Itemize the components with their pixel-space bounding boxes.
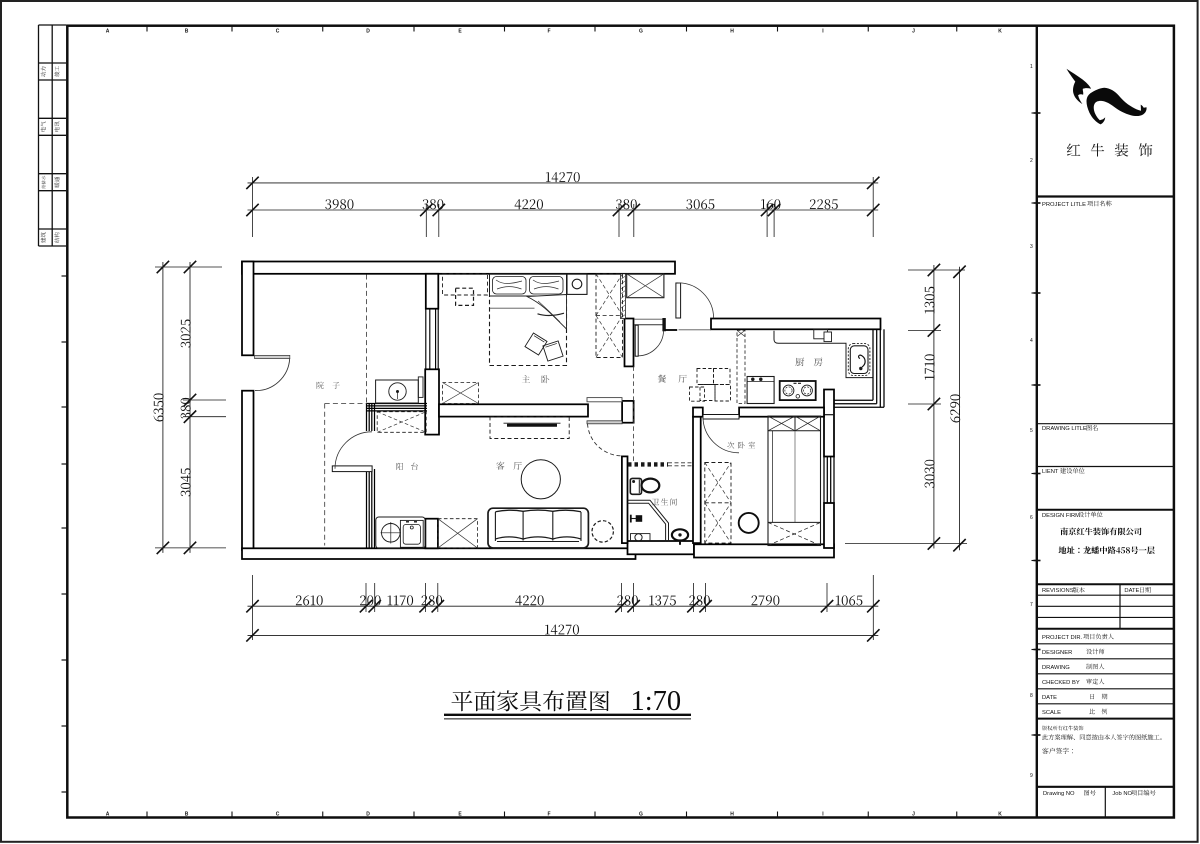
svg-text:DESIGN FIRM: DESIGN FIRM (1042, 513, 1080, 519)
svg-text:H: H (730, 29, 734, 35)
svg-text:J: J (912, 812, 915, 818)
svg-text:A: A (106, 29, 110, 35)
svg-text:1: 1 (1030, 64, 1033, 70)
svg-text:REVISIONS: REVISIONS (1042, 588, 1074, 594)
svg-text:DESIGNER: DESIGNER (1042, 650, 1072, 656)
svg-text:3: 3 (1030, 244, 1033, 250)
svg-text:2: 2 (1030, 158, 1033, 164)
svg-text:5: 5 (1030, 428, 1033, 434)
svg-text:4: 4 (1030, 338, 1033, 344)
svg-text:9: 9 (1030, 773, 1033, 779)
svg-text:1:70: 1:70 (631, 686, 682, 717)
svg-text:J: J (912, 29, 915, 35)
svg-text:7: 7 (1030, 602, 1033, 608)
svg-text:D: D (366, 812, 370, 818)
svg-text:G: G (639, 812, 643, 818)
svg-text:8: 8 (1030, 693, 1033, 699)
svg-text:K: K (998, 812, 1002, 818)
svg-text:H: H (730, 812, 734, 818)
svg-text:B: B (185, 29, 189, 35)
svg-text:C: C (276, 29, 280, 35)
svg-text:PROJECT DIR.: PROJECT DIR. (1042, 635, 1083, 641)
svg-text:LIENT: LIENT (1042, 469, 1059, 475)
svg-text:DATE: DATE (1042, 695, 1057, 701)
svg-text:A: A (106, 812, 110, 818)
svg-text:K: K (998, 29, 1002, 35)
svg-text:DRAWING: DRAWING (1042, 665, 1070, 671)
svg-text:G: G (639, 29, 643, 35)
svg-text:DATE: DATE (1124, 588, 1139, 594)
svg-text:CHECKED BY: CHECKED BY (1042, 680, 1080, 686)
svg-text:6: 6 (1030, 515, 1033, 521)
svg-text:C: C (276, 812, 280, 818)
svg-text:PROJECT LITLE: PROJECT LITLE (1042, 202, 1086, 208)
svg-text:F: F (547, 812, 550, 818)
svg-text:D: D (366, 29, 370, 35)
svg-text:F: F (547, 29, 550, 35)
svg-text:Job NO: Job NO (1112, 791, 1132, 797)
svg-text:Drawing NO: Drawing NO (1043, 791, 1075, 797)
svg-text:SCALE: SCALE (1042, 710, 1061, 716)
svg-text:DRAWING LITLE: DRAWING LITLE (1042, 426, 1087, 432)
svg-text:B: B (185, 812, 189, 818)
